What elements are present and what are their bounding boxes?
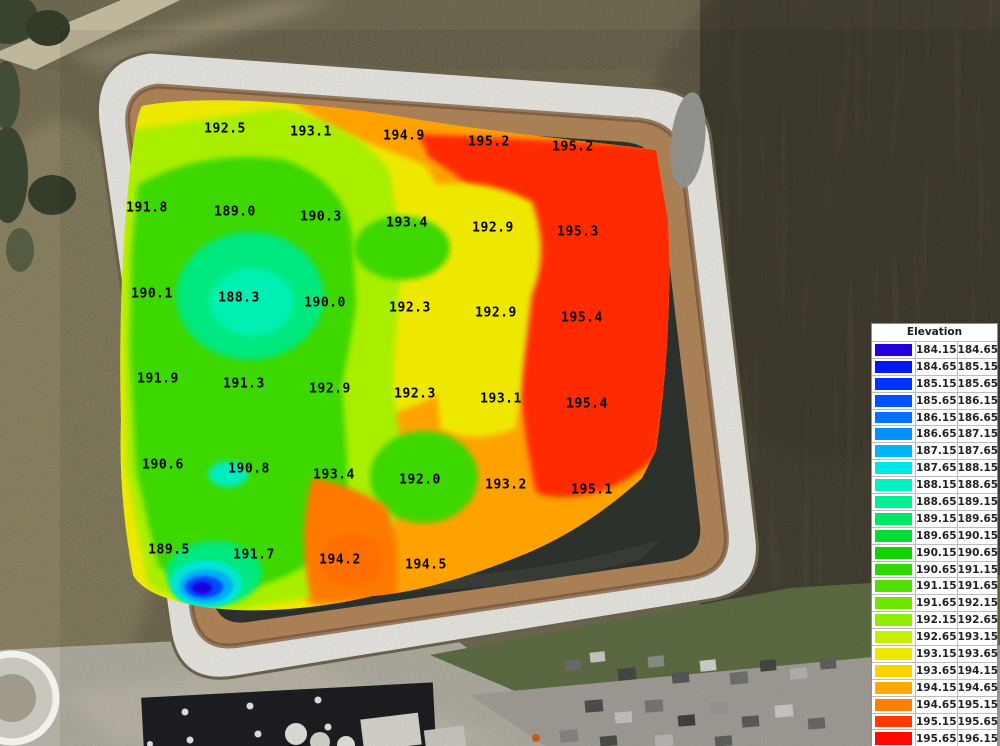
legend-color-swatch [875, 445, 912, 457]
legend-range-from: 191.65 [916, 595, 958, 611]
legend-range-from: 195.15 [916, 714, 958, 730]
legend-color-swatch [875, 547, 912, 559]
legend-color-swatch [875, 496, 912, 508]
legend-row: 186.65 187.15 [872, 426, 997, 443]
legend-swatch-cell [872, 426, 916, 442]
legend-range-to: 192.65 [958, 612, 999, 628]
legend-swatch-cell [872, 477, 916, 493]
legend-range-from: 193.65 [916, 663, 958, 679]
legend-row: 188.65 189.15 [872, 494, 997, 511]
legend-swatch-cell [872, 714, 916, 730]
legend-range-to: 193.65 [958, 646, 999, 662]
legend-swatch-cell [872, 443, 916, 459]
legend-swatch-cell [872, 376, 916, 392]
legend-color-swatch [875, 361, 912, 373]
legend-range-from: 187.15 [916, 443, 958, 459]
legend-range-to: 187.65 [958, 443, 999, 459]
clarifier-tank [0, 654, 56, 742]
legend-range-from: 184.65 [916, 359, 958, 375]
legend-color-swatch [875, 412, 912, 424]
legend-color-swatch [875, 395, 912, 407]
legend-color-swatch [875, 682, 912, 694]
legend-swatch-cell [872, 511, 916, 527]
legend-color-swatch [875, 564, 912, 576]
legend-row: 191.65 192.15 [872, 595, 997, 612]
legend-swatch-cell [872, 393, 916, 409]
legend-color-swatch [875, 732, 912, 745]
legend-row: 184.15 184.65 [872, 342, 997, 359]
legend-range-to: 195.15 [958, 697, 999, 713]
legend-row: 190.65 191.15 [872, 562, 997, 579]
legend-range-to: 192.15 [958, 595, 999, 611]
legend-row: 189.15 189.65 [872, 511, 997, 528]
legend-row: 190.15 190.65 [872, 545, 997, 562]
legend-range-to: 189.15 [958, 494, 999, 510]
legend-row: 189.65 190.15 [872, 528, 997, 545]
legend-range-from: 190.65 [916, 562, 958, 578]
legend-swatch-cell [872, 359, 916, 375]
legend-color-swatch [875, 614, 912, 626]
legend-range-from: 190.15 [916, 545, 958, 561]
legend-range-to: 185.65 [958, 376, 999, 392]
legend-range-to: 196.15 [958, 730, 999, 746]
legend-row: 192.15 192.65 [872, 612, 997, 629]
legend-swatch-cell [872, 646, 916, 662]
deep-spot [170, 560, 242, 608]
legend-color-swatch [875, 378, 912, 390]
legend-range-to: 191.15 [958, 562, 999, 578]
legend-range-to: 194.65 [958, 680, 999, 696]
legend-range-from: 189.65 [916, 528, 958, 544]
legend-swatch-cell [872, 578, 916, 594]
legend-range-to: 193.15 [958, 629, 999, 645]
legend-row: 187.15 187.65 [872, 443, 997, 460]
legend-range-to: 186.65 [958, 410, 999, 426]
legend-color-swatch [875, 699, 912, 711]
legend-row: 187.65 188.15 [872, 460, 997, 477]
legend-range-from: 186.65 [916, 426, 958, 442]
legend-range-from: 194.65 [916, 697, 958, 713]
legend-color-swatch [875, 344, 912, 356]
legend-range-to: 186.15 [958, 393, 999, 409]
legend-color-swatch [875, 530, 912, 542]
legend-row: 193.15 193.65 [872, 646, 997, 663]
legend-color-swatch [875, 513, 912, 525]
legend-swatch-cell [872, 697, 916, 713]
legend-range-from: 184.15 [916, 342, 958, 358]
legend-color-swatch [875, 665, 912, 677]
legend-range-from: 191.15 [916, 578, 958, 594]
legend-row: 194.15 194.65 [872, 680, 997, 697]
legend-title: Elevation [872, 324, 997, 342]
legend-range-to: 190.65 [958, 545, 999, 561]
legend-swatch-cell [872, 663, 916, 679]
legend-range-from: 193.15 [916, 646, 958, 662]
legend-color-swatch [875, 462, 912, 474]
legend-swatch-cell [872, 612, 916, 628]
elevation-legend: Elevation 184.15 184.65 184.65 185.15 18… [871, 323, 998, 746]
legend-range-to: 185.15 [958, 359, 999, 375]
legend-row: 195.65 196.15 [872, 730, 997, 746]
legend-swatch-cell [872, 562, 916, 578]
legend-range-to: 190.15 [958, 528, 999, 544]
legend-range-from: 188.15 [916, 477, 958, 493]
legend-color-swatch [875, 597, 912, 609]
legend-swatch-cell [872, 494, 916, 510]
legend-color-swatch [875, 428, 912, 440]
legend-row: 192.65 193.15 [872, 629, 997, 646]
legend-range-from: 189.15 [916, 511, 958, 527]
legend-swatch-cell [872, 629, 916, 645]
legend-swatch-cell [872, 342, 916, 358]
legend-range-from: 186.15 [916, 410, 958, 426]
legend-range-to: 191.65 [958, 578, 999, 594]
legend-row: 194.65 195.15 [872, 697, 997, 714]
legend-swatch-cell [872, 545, 916, 561]
legend-color-swatch [875, 631, 912, 643]
legend-range-to: 187.15 [958, 426, 999, 442]
legend-row: 186.15 186.65 [872, 410, 997, 427]
legend-range-from: 188.65 [916, 494, 958, 510]
legend-range-from: 192.15 [916, 612, 958, 628]
legend-swatch-cell [872, 528, 916, 544]
legend-swatch-cell [872, 730, 916, 746]
legend-row: 195.15 195.65 [872, 714, 997, 731]
legend-row: 185.65 186.15 [872, 393, 997, 410]
aerial-basemap [0, 0, 1000, 746]
legend-range-to: 194.15 [958, 663, 999, 679]
legend-swatch-cell [872, 410, 916, 426]
legend-range-from: 185.15 [916, 376, 958, 392]
legend-swatch-cell [872, 595, 916, 611]
legend-row: 193.65 194.15 [872, 663, 997, 680]
legend-range-to: 184.65 [958, 342, 999, 358]
legend-swatch-cell [872, 680, 916, 696]
legend-color-swatch [875, 716, 912, 728]
legend-range-from: 194.15 [916, 680, 958, 696]
legend-range-to: 189.65 [958, 511, 999, 527]
legend-swatch-cell [872, 460, 916, 476]
legend-color-swatch [875, 580, 912, 592]
legend-row: 188.15 188.65 [872, 477, 997, 494]
legend-range-from: 192.65 [916, 629, 958, 645]
legend-range-to: 195.65 [958, 714, 999, 730]
legend-row: 185.15 185.65 [872, 376, 997, 393]
legend-row: 191.15 191.65 [872, 578, 997, 595]
legend-range-to: 188.65 [958, 477, 999, 493]
legend-row: 184.65 185.15 [872, 359, 997, 376]
legend-color-swatch [875, 479, 912, 491]
legend-range-from: 185.65 [916, 393, 958, 409]
legend-range-to: 188.15 [958, 460, 999, 476]
elevation-survey-map: 192.5193.1194.9195.2195.2191.8189.0190.3… [0, 0, 1000, 746]
legend-range-from: 187.65 [916, 460, 958, 476]
legend-color-swatch [875, 648, 912, 660]
legend-range-from: 195.65 [916, 730, 958, 746]
